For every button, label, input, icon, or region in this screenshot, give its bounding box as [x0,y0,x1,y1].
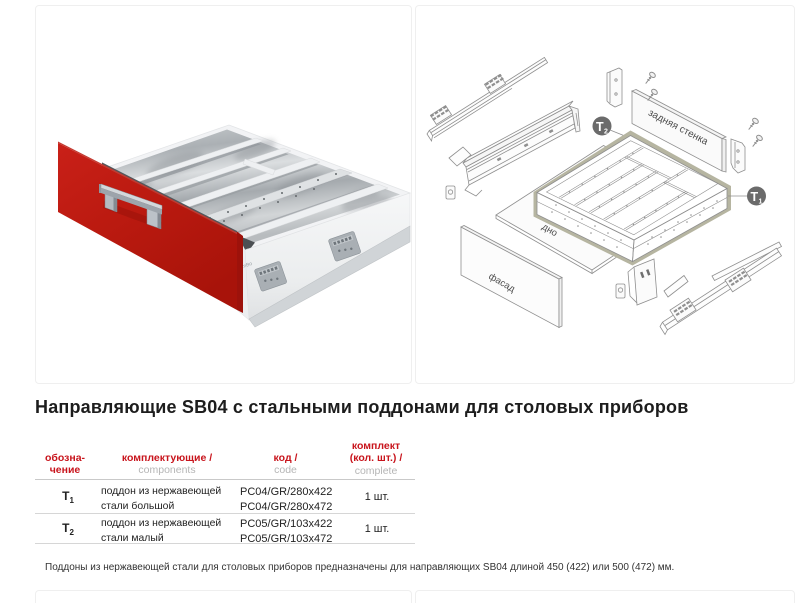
svg-text:1: 1 [759,199,763,206]
svg-text:2: 2 [604,129,608,136]
svg-text:T: T [751,190,759,204]
svg-text:T: T [596,120,604,134]
